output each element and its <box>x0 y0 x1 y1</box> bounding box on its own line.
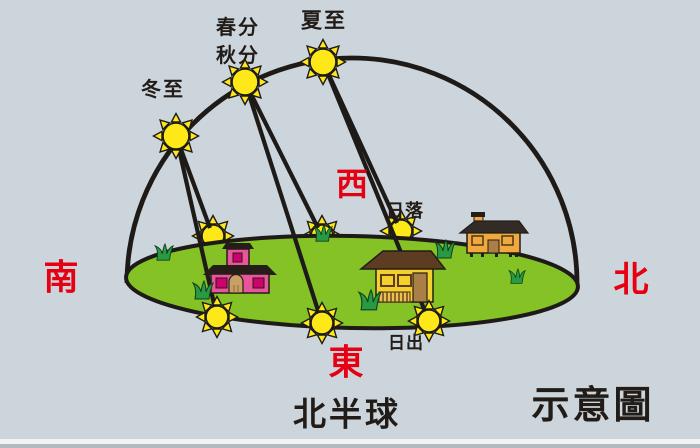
sun-disc-icon <box>310 49 336 75</box>
label-south: 南 <box>43 262 80 297</box>
label-spring-equinox: 春分 <box>216 17 260 37</box>
sun-disc-icon <box>232 69 258 95</box>
label-sunrise: 日出 <box>388 336 424 353</box>
yellow-house-window-right <box>398 275 411 286</box>
orange-house <box>460 212 528 257</box>
label-schematic: 示意圖 <box>531 386 654 424</box>
yellow-house-porch-rails <box>383 292 407 302</box>
sun-ray-icon <box>318 76 327 85</box>
label-east: 東 <box>328 347 365 382</box>
orange-house-window-right <box>502 236 513 245</box>
sun-path-diagram: 冬至 春分 秋分 夏至 日落 日出 南 西 東 北 北半球 示意圖 <box>0 0 700 448</box>
pink-house-window-right <box>253 278 264 288</box>
pink-house-door <box>229 275 243 293</box>
sun-sunrise-equinox <box>302 303 343 344</box>
pink-house-tower-cap <box>222 243 254 249</box>
sun-ray-icon <box>424 333 433 342</box>
yellow-house-window-left <box>381 275 394 286</box>
path-equinox-to-sunset <box>245 82 318 228</box>
bottom-border-dark <box>0 444 700 448</box>
sun-summer-solstice <box>301 40 346 85</box>
sun-ray-icon <box>171 114 180 123</box>
sun-ray-icon <box>154 131 163 140</box>
orange-house-window-left <box>472 236 483 245</box>
sun-winter-solstice <box>154 114 199 159</box>
orange-house-door <box>488 240 499 253</box>
sun-ray-icon <box>223 77 232 86</box>
sun-ray-icon <box>317 335 326 344</box>
label-west: 西 <box>336 168 370 200</box>
label-north: 北 <box>613 264 650 299</box>
orange-house-roof <box>460 221 528 233</box>
label-winter-solstice: 冬至 <box>141 79 185 99</box>
sun-ray-icon <box>240 96 249 105</box>
sun-ray-icon <box>317 216 326 225</box>
label-summer-solstice: 夏至 <box>301 11 347 32</box>
sun-sunrise-winter <box>197 297 238 338</box>
pink-house-window-left <box>216 278 227 288</box>
yellow-house-door <box>413 273 427 302</box>
sun-disc-icon <box>163 123 189 149</box>
sun-disc-icon <box>418 310 440 332</box>
label-sunset: 日落 <box>386 203 424 221</box>
sun-disc-icon <box>311 312 333 334</box>
sun-ray-icon <box>212 329 221 338</box>
label-hemisphere: 北半球 <box>293 398 401 431</box>
label-autumn-equinox: 秋分 <box>216 45 260 65</box>
sun-ray-icon <box>413 226 422 235</box>
sun-ray-icon <box>381 226 390 235</box>
orange-house-chimney-cap <box>471 212 485 217</box>
sun-ray-icon <box>318 40 327 49</box>
sun-disc-icon <box>206 306 228 328</box>
pink-house-tower-window <box>233 253 242 262</box>
sun-ray-icon <box>190 131 199 140</box>
